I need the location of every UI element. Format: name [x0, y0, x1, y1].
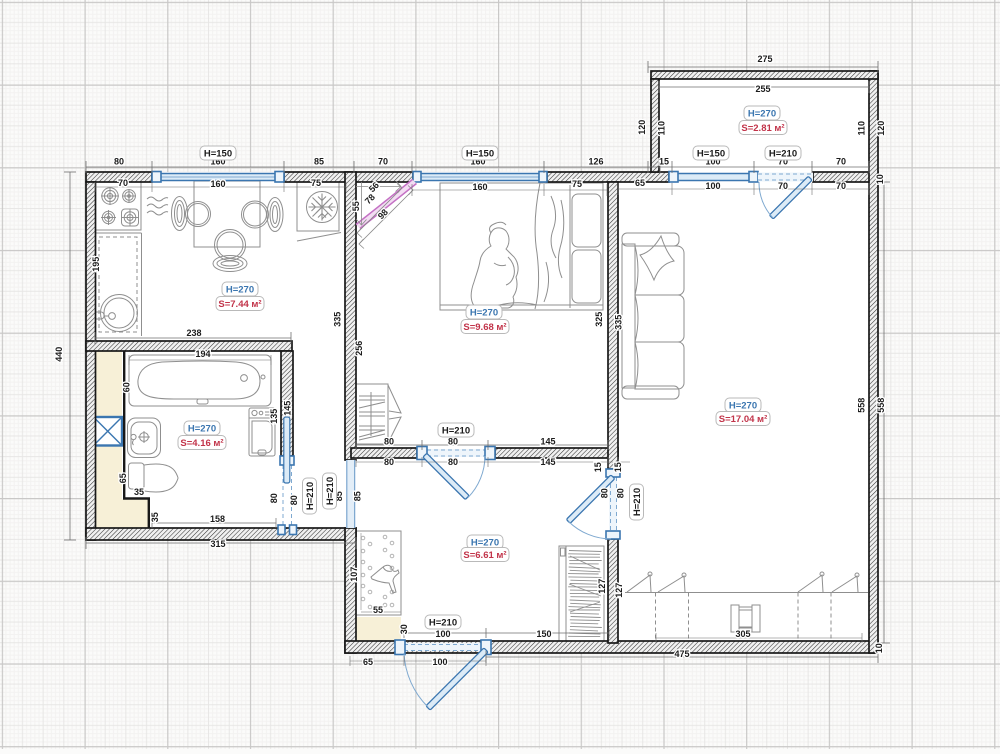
svg-text:558: 558 — [876, 398, 886, 413]
svg-text:325: 325 — [594, 312, 604, 327]
svg-text:195: 195 — [91, 257, 101, 272]
svg-text:475: 475 — [674, 649, 689, 659]
svg-text:80: 80 — [616, 488, 626, 498]
svg-text:80: 80 — [114, 157, 124, 167]
svg-text:H=150: H=150 — [204, 148, 232, 159]
svg-text:85: 85 — [353, 491, 363, 501]
svg-text:H=270: H=270 — [729, 400, 757, 411]
svg-text:135: 135 — [269, 409, 279, 424]
svg-text:256: 256 — [354, 341, 364, 356]
svg-text:15: 15 — [593, 462, 603, 472]
svg-text:335: 335 — [614, 315, 624, 330]
svg-text:126: 126 — [588, 157, 603, 167]
svg-text:60: 60 — [122, 382, 132, 392]
svg-text:H=210: H=210 — [429, 617, 457, 628]
svg-text:80: 80 — [384, 437, 394, 447]
svg-text:160: 160 — [210, 179, 225, 189]
svg-text:305: 305 — [735, 629, 750, 639]
svg-text:15: 15 — [659, 157, 669, 167]
svg-text:S=17.04 м²: S=17.04 м² — [719, 414, 768, 425]
svg-text:S=7.44 м²: S=7.44 м² — [218, 299, 261, 310]
svg-text:275: 275 — [757, 54, 772, 64]
svg-text:S=9.68 м²: S=9.68 м² — [463, 322, 506, 333]
svg-text:100: 100 — [432, 657, 447, 667]
svg-text:255: 255 — [755, 84, 770, 94]
svg-text:H=150: H=150 — [697, 148, 725, 159]
svg-text:80: 80 — [600, 488, 610, 498]
svg-text:145: 145 — [540, 457, 555, 467]
svg-text:H=270: H=270 — [471, 537, 499, 548]
svg-text:H=270: H=270 — [188, 423, 216, 434]
svg-text:335: 335 — [333, 312, 343, 327]
svg-text:158: 158 — [210, 514, 225, 524]
svg-text:55: 55 — [351, 201, 361, 211]
svg-text:H=150: H=150 — [466, 148, 494, 159]
svg-text:H=210: H=210 — [769, 148, 797, 159]
svg-text:70: 70 — [378, 157, 388, 167]
svg-text:100: 100 — [705, 181, 720, 191]
svg-text:127: 127 — [614, 583, 624, 598]
svg-text:S=6.61 м²: S=6.61 м² — [463, 550, 506, 561]
svg-text:75: 75 — [572, 179, 582, 189]
svg-text:80: 80 — [384, 457, 394, 467]
svg-text:H=210: H=210 — [442, 425, 470, 436]
svg-text:145: 145 — [283, 401, 293, 416]
svg-text:127: 127 — [597, 579, 607, 594]
svg-text:80: 80 — [289, 495, 299, 505]
svg-text:15: 15 — [613, 462, 623, 472]
svg-text:H=210: H=210 — [305, 482, 316, 510]
svg-text:80: 80 — [448, 437, 458, 447]
svg-text:110: 110 — [857, 121, 867, 136]
svg-text:440: 440 — [54, 347, 64, 362]
svg-text:75: 75 — [311, 178, 321, 188]
svg-text:110: 110 — [657, 121, 667, 136]
svg-text:S=2.81 м²: S=2.81 м² — [741, 123, 784, 134]
svg-text:238: 238 — [186, 328, 201, 338]
svg-text:H=210: H=210 — [325, 477, 336, 505]
svg-text:65: 65 — [118, 473, 128, 483]
svg-text:160: 160 — [472, 182, 487, 192]
svg-text:80: 80 — [269, 493, 279, 503]
svg-text:120: 120 — [637, 120, 647, 135]
svg-text:70: 70 — [118, 178, 128, 188]
svg-text:30: 30 — [399, 624, 409, 634]
svg-text:80: 80 — [448, 457, 458, 467]
svg-text:35: 35 — [150, 512, 160, 522]
svg-text:H=270: H=270 — [470, 307, 498, 318]
svg-text:150: 150 — [536, 629, 551, 639]
svg-text:35: 35 — [134, 487, 144, 497]
svg-text:65: 65 — [363, 657, 373, 667]
svg-text:120: 120 — [876, 121, 886, 136]
svg-text:315: 315 — [210, 539, 225, 549]
svg-text:145: 145 — [540, 437, 555, 447]
svg-text:107: 107 — [349, 567, 359, 582]
svg-text:H=270: H=270 — [748, 108, 776, 119]
svg-text:194: 194 — [195, 349, 210, 359]
svg-text:70: 70 — [778, 181, 788, 191]
svg-text:10: 10 — [874, 643, 884, 653]
svg-text:S=4.16 м²: S=4.16 м² — [180, 438, 223, 449]
svg-text:10: 10 — [875, 174, 885, 184]
svg-text:H=210: H=210 — [632, 488, 643, 516]
svg-text:H=270: H=270 — [226, 284, 254, 295]
svg-text:65: 65 — [635, 178, 645, 188]
svg-text:85: 85 — [314, 157, 324, 167]
svg-text:70: 70 — [836, 157, 846, 167]
svg-text:55: 55 — [373, 605, 383, 615]
svg-text:70: 70 — [836, 181, 846, 191]
svg-text:100: 100 — [435, 629, 450, 639]
svg-text:558: 558 — [857, 398, 867, 413]
